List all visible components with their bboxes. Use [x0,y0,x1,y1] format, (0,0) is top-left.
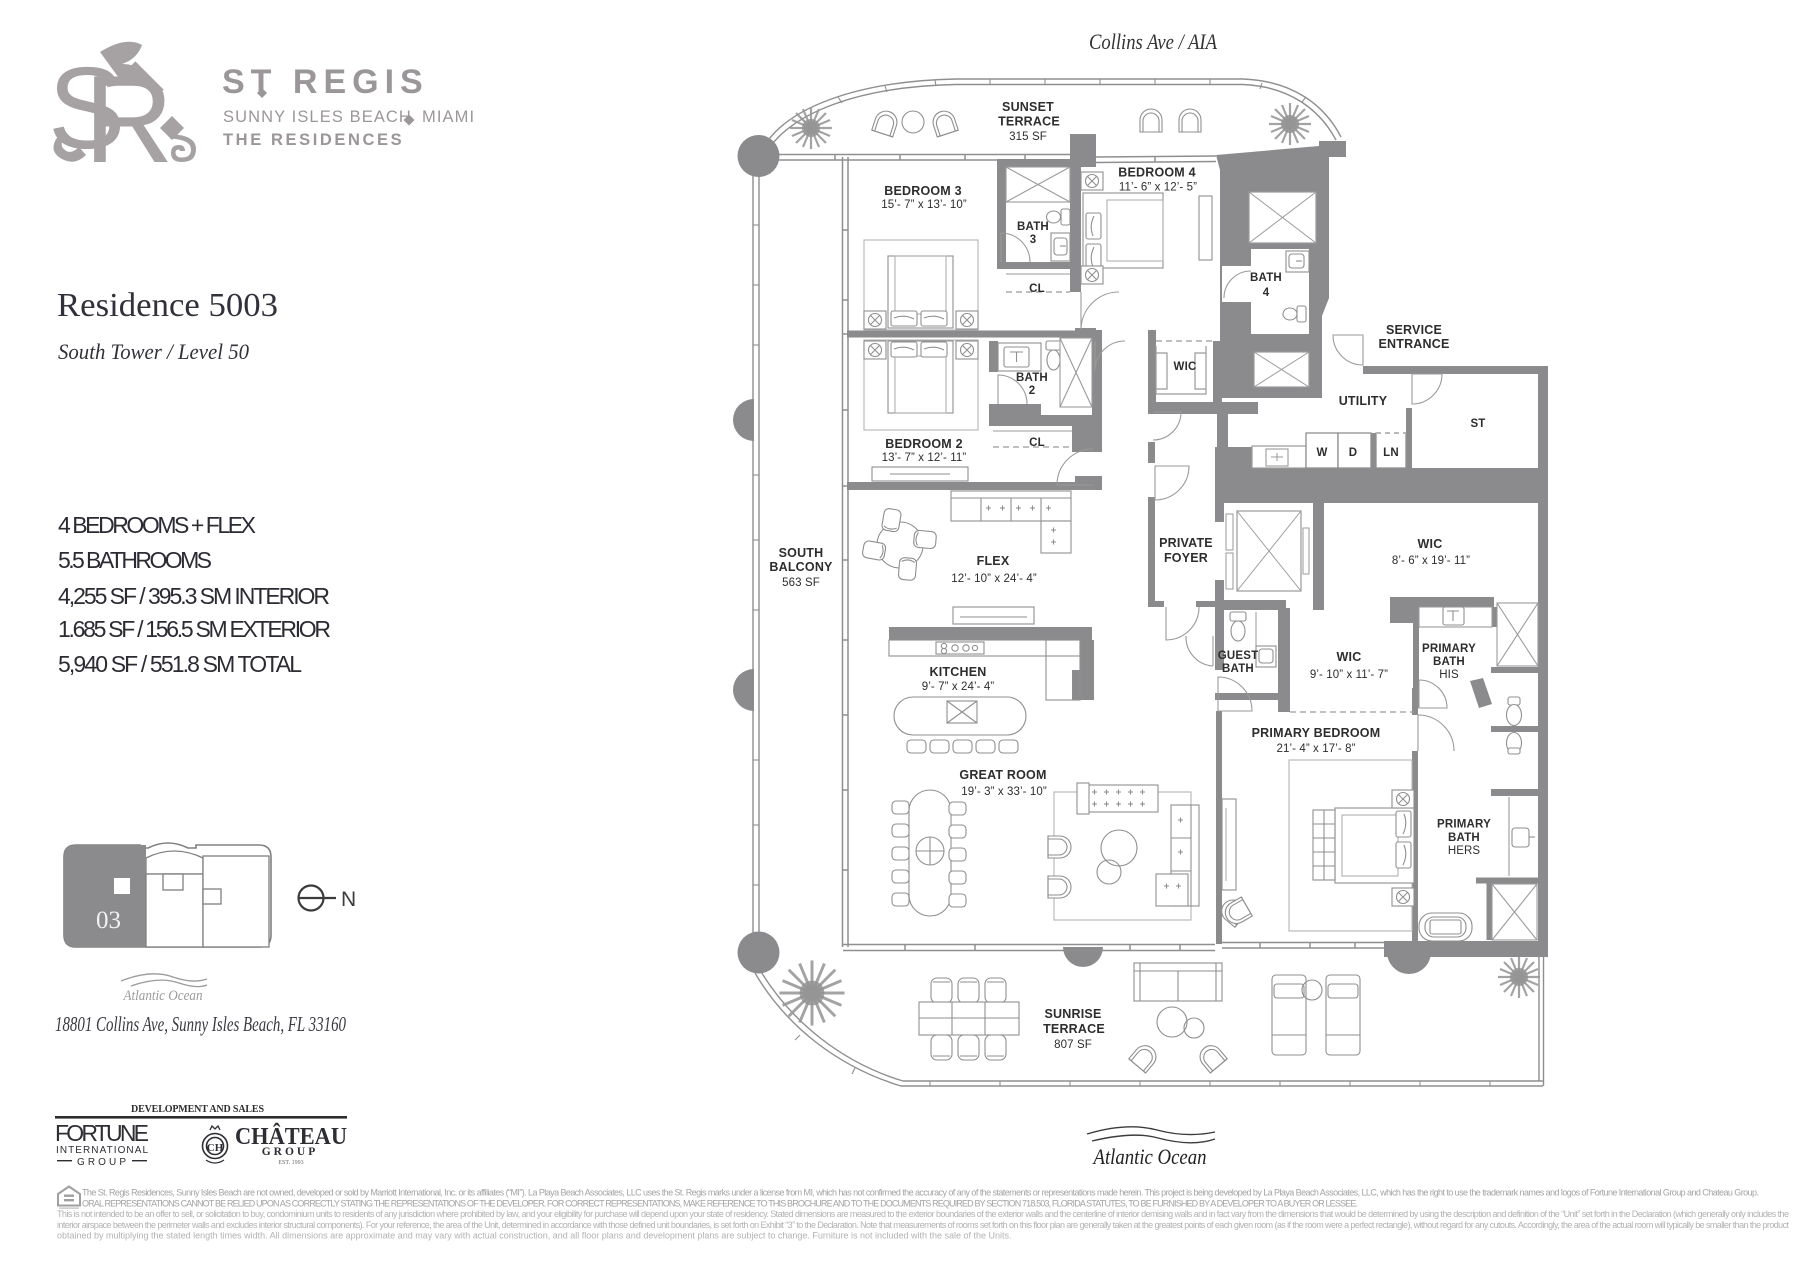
svg-text:TERRACE: TERRACE [998,115,1060,129]
svg-text:DEVELOPMENT AND SALES: DEVELOPMENT AND SALES [131,1104,265,1115]
svg-text:UTILITY: UTILITY [1339,394,1388,408]
svg-text:This is not intended to be an: This is not intended to be an offer to s… [57,1209,1789,1219]
svg-text:W: W [1316,447,1327,459]
svg-text:GREAT ROOM: GREAT ROOM [959,768,1046,782]
svg-text:THE RESIDENCES: THE RESIDENCES [223,131,404,149]
svg-text:interior airspace between th: interior airspace between the perimeter … [57,1220,1789,1230]
svg-text:FLEX: FLEX [977,554,1010,568]
svg-text:ENTRANCE: ENTRANCE [1378,337,1449,351]
svg-text:15’- 7” x 13’- 10”: 15’- 7” x 13’- 10” [881,199,967,211]
svg-text:GROUP: GROUP [77,1157,128,1168]
svg-text:PRIMARY: PRIMARY [1437,819,1491,831]
svg-text:BATH: BATH [1433,656,1465,668]
svg-text:BATH: BATH [1448,832,1480,844]
svg-text:KITCHEN: KITCHEN [930,665,987,679]
svg-text:SUNSET: SUNSET [1002,100,1054,114]
svg-text:PRIVATE: PRIVATE [1159,536,1213,550]
svg-text:ST: ST [1470,418,1485,430]
svg-text:WIC: WIC [1418,537,1443,551]
svg-text:South Tower / Level 50: South Tower / Level 50 [58,339,249,364]
svg-text:SERVICE: SERVICE [1386,323,1442,337]
svg-text:CL: CL [1029,283,1045,295]
svg-text:MIAMI: MIAMI [422,108,475,126]
svg-text:4,255 SF / 395.3 SM INTERIOR: 4,255 SF / 395.3 SM INTERIOR [58,583,330,609]
svg-text:Atlantic Ocean: Atlantic Ocean [123,988,203,1004]
svg-text:TERRACE: TERRACE [1043,1022,1105,1036]
svg-text:11’- 6” x 12’- 5”: 11’- 6” x 12’- 5” [1119,182,1197,194]
svg-text:9’- 7” x 24’- 4”: 9’- 7” x 24’- 4” [922,681,995,693]
svg-text:BEDROOM 4: BEDROOM 4 [1118,166,1196,180]
svg-text:03: 03 [96,907,121,934]
svg-text:2: 2 [1029,385,1036,397]
svg-text:obtained by multiplying the st: obtained by multiplying the stated lengt… [57,1231,1012,1241]
svg-text:5,940 SF / 551.8 SM TOTAL: 5,940 SF / 551.8 SM TOTAL [58,651,302,677]
svg-text:FOYER: FOYER [1164,551,1208,565]
svg-text:BATH: BATH [1250,272,1282,284]
svg-text:HIS: HIS [1439,669,1459,681]
svg-text:BATH: BATH [1016,372,1048,384]
svg-text:SUNNY ISLES BEACH: SUNNY ISLES BEACH [223,108,412,126]
svg-text:EST. 1993: EST. 1993 [278,1160,303,1166]
svg-text:GROUP: GROUP [262,1146,319,1158]
svg-text:INTERNATIONAL: INTERNATIONAL [56,1145,148,1156]
svg-text:Collins Ave / AIA: Collins Ave / AIA [1089,29,1217,54]
svg-text:12’- 10” x 24’- 4”: 12’- 10” x 24’- 4” [951,573,1037,585]
svg-text:19’- 3” x 33’- 10”: 19’- 3” x 33’- 10” [961,786,1047,798]
svg-text:BATH: BATH [1017,221,1049,233]
svg-text:ST REGIS: ST REGIS [222,63,429,101]
svg-text:WIC: WIC [1337,650,1362,664]
svg-text:315 SF: 315 SF [1009,131,1047,143]
svg-text:D: D [1349,447,1358,459]
svg-text:563 SF: 563 SF [782,577,820,589]
svg-text:8’- 6” x 19’- 11”: 8’- 6” x 19’- 11” [1392,555,1470,567]
svg-text:4 BEDROOMS + FLEX: 4 BEDROOMS + FLEX [58,512,256,538]
svg-text:18801 Collins Ave, Sunny Isles: 18801 Collins Ave, Sunny Isles Beach, FL… [55,1012,346,1036]
svg-text:4: 4 [1263,287,1270,299]
svg-text:13’- 7” x 12’- 11”: 13’- 7” x 12’- 11” [882,452,967,464]
svg-text:BALCONY: BALCONY [769,560,833,574]
svg-text:GUEST: GUEST [1218,650,1259,662]
svg-text:N: N [341,888,356,911]
svg-text:Atlantic Ocean: Atlantic Ocean [1092,1144,1207,1169]
svg-text:BATH: BATH [1222,663,1254,675]
svg-text:FORTUNE: FORTUNE [55,1120,149,1146]
svg-text:CL: CL [1029,437,1045,449]
svg-text:The St. Regis Residences, Sunn: The St. Regis Residences, Sunny Isles Be… [82,1188,1759,1198]
svg-text:SUNRISE: SUNRISE [1045,1007,1102,1021]
svg-text:BEDROOM 3: BEDROOM 3 [884,184,962,198]
svg-text:PRIMARY: PRIMARY [1422,643,1476,655]
svg-text:PRIMARY BEDROOM: PRIMARY BEDROOM [1252,726,1381,740]
svg-text:807 SF: 807 SF [1054,1039,1092,1051]
svg-text:ORAL REPRESENTATIONS CANNOT BE: ORAL REPRESENTATIONS CANNOT BE RELIED UP… [82,1199,1358,1209]
svg-text:SOUTH: SOUTH [779,546,824,560]
svg-text:21’- 4” x 17’- 8”: 21’- 4” x 17’- 8” [1276,743,1355,755]
svg-text:BEDROOM 2: BEDROOM 2 [885,437,963,451]
svg-text:1.685 SF / 156.5 SM EXTERIOR: 1.685 SF / 156.5 SM EXTERIOR [58,616,331,642]
svg-text:9’- 10” x 11’- 7”: 9’- 10” x 11’- 7” [1310,669,1388,681]
svg-text:5.5 BATHROOMS: 5.5 BATHROOMS [58,547,212,573]
svg-text:LN: LN [1383,447,1399,459]
svg-text:Residence 5003: Residence 5003 [57,287,278,324]
svg-text:CH: CH [207,1142,224,1154]
svg-text:3: 3 [1030,234,1037,246]
svg-text:HERS: HERS [1448,845,1481,857]
svg-text:WIC: WIC [1174,361,1197,373]
